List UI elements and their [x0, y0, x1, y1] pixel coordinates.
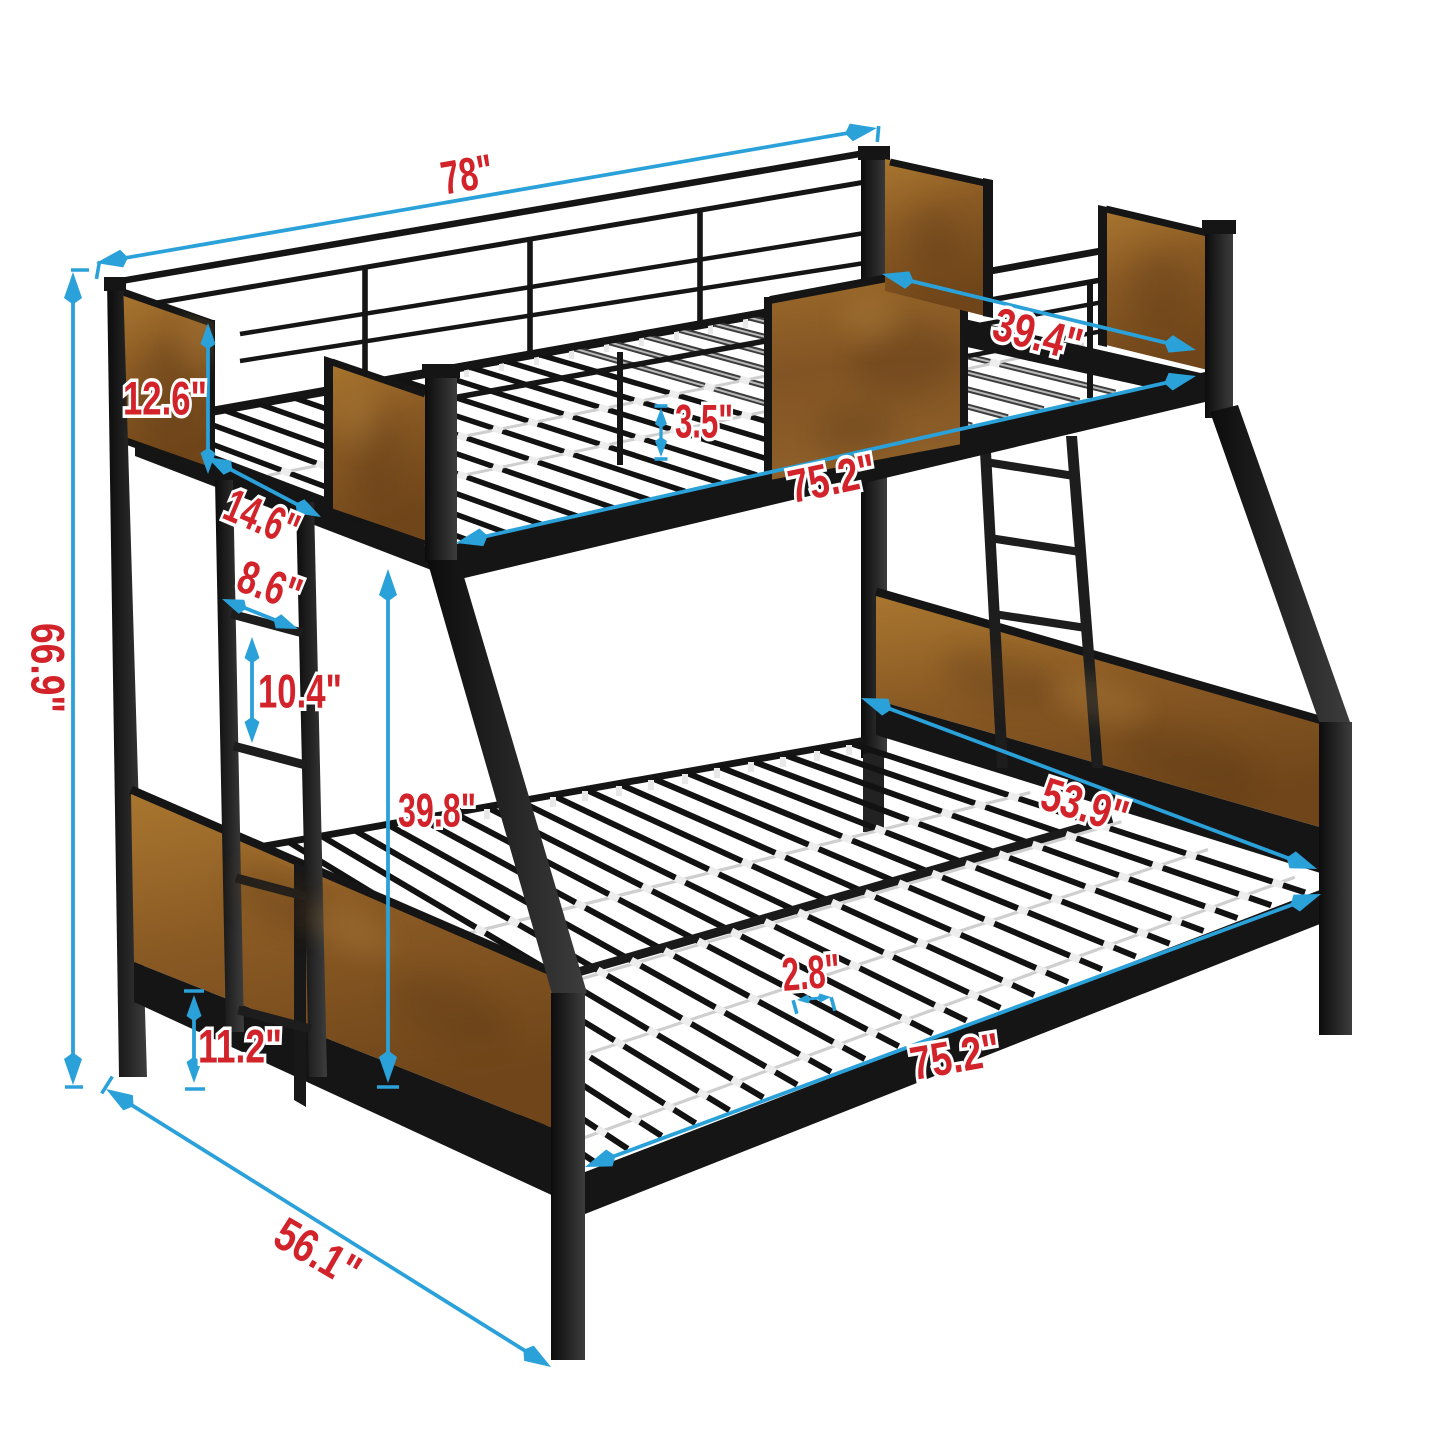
svg-text:39.8": 39.8": [398, 784, 476, 837]
svg-text:3.5": 3.5": [675, 395, 733, 448]
svg-text:2.8": 2.8": [780, 943, 842, 1001]
svg-text:10.4": 10.4": [258, 665, 342, 718]
svg-text:11.2": 11.2": [198, 1020, 282, 1073]
svg-text:66.9": 66.9": [22, 623, 75, 713]
svg-text:78": 78": [437, 143, 497, 204]
svg-text:12.6": 12.6": [123, 372, 207, 425]
